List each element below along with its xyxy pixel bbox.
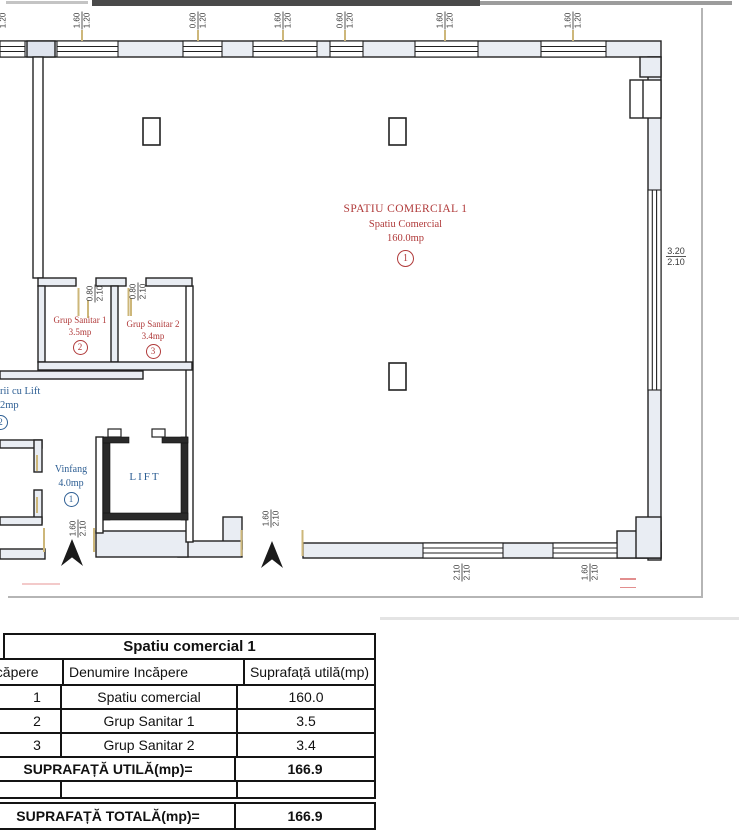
lift-label: LIFT (116, 470, 174, 485)
dimension-label: 1.601.20 (564, 6, 583, 36)
header-suprafata: Suprafață utilă(mp) (245, 660, 374, 684)
empty-row (0, 780, 376, 799)
red-stamp-mark (22, 583, 60, 590)
room-index-badge: 2 (73, 340, 88, 355)
table-header-row: ncăpere Denumire Incăpere Suprafață util… (0, 658, 376, 686)
facade-protrusion (630, 80, 661, 118)
floor-plan-drawing (0, 0, 739, 625)
room-area: 3.5mp (42, 326, 118, 338)
cell-area: 3.4 (238, 734, 374, 756)
dimension-label: 2.102.10 (453, 558, 472, 588)
dimension-label: 1.602.10 (581, 558, 600, 588)
room-area-partial: 2mp (0, 399, 64, 413)
door-dimension-label: 0.802.10 (86, 279, 105, 309)
cell-area: 160.0 (238, 686, 374, 708)
grup-sanitar-1-label: Grup Sanitar 1 3.5mp 2 (42, 314, 118, 355)
total-area-value: 166.9 (236, 804, 374, 828)
cell-name: Grup Sanitar 1 (60, 710, 238, 732)
room-name: LIFT (129, 471, 160, 483)
main-room-label: SPATIU COMERCIAL 1 Spatiu Comercial 160.… (328, 202, 483, 267)
table-title: Spatiu comercial 1 (3, 633, 376, 660)
room-area: 3.4mp (114, 330, 192, 342)
room-index-badge: 2 (0, 415, 8, 430)
room-subtitle: Spatiu Comercial (328, 218, 483, 232)
entrance-dimension-label: 1.602.10 (262, 504, 281, 534)
useful-area-value: 166.9 (236, 758, 374, 780)
room-index-badge: 1 (64, 492, 79, 507)
table-row: 2 Grup Sanitar 1 3.5 (0, 708, 376, 734)
cell-name: Grup Sanitar 2 (60, 734, 238, 756)
useful-area-label: SUPRAFAȚĂ UTILĂ(mp)= (0, 758, 236, 780)
floor-plan-document: SPATIU COMERCIAL 1 Spatiu Comercial 160.… (0, 0, 739, 838)
dimension-label: 0.601.20 (189, 6, 208, 36)
cell-name: Spatiu comercial (60, 686, 238, 708)
room-name: Vinfang (40, 463, 102, 477)
grup-sanitar-2-label: Grup Sanitar 2 3.4mp 3 (114, 318, 192, 359)
table-row: 3 Grup Sanitar 2 3.4 (0, 732, 376, 758)
room-area: 160.0mp (328, 232, 483, 246)
side-window-dimension-label: 3.20 2.10 (662, 246, 690, 267)
area-table: Spatiu comercial 1 ncăpere Denumire Incă… (0, 633, 376, 830)
total-area-label: SUPRAFAȚĂ TOTALĂ(mp)= (0, 804, 236, 828)
room-name: Grup Sanitar 2 (114, 318, 192, 330)
cell-area: 3.5 (238, 710, 374, 732)
cell-nr: 1 (0, 686, 60, 708)
dimension-label: 1.601.20 (73, 6, 92, 36)
red-stamp-mark (620, 578, 636, 588)
entrance-dimension-label: 1.602.10 (69, 514, 88, 544)
header-nr-incapere: ncăpere (0, 660, 62, 684)
total-area-row: SUPRAFAȚĂ TOTALĂ(mp)= 166.9 (0, 802, 376, 830)
dimension-label: 1.601.20 (436, 6, 455, 36)
room-index-badge: 3 (146, 344, 161, 359)
cell-nr: 3 (0, 734, 60, 756)
room-name: Grup Sanitar 1 (42, 314, 118, 326)
room-index-badge: 1 (397, 250, 414, 267)
header-denumire: Denumire Incăpere (62, 660, 245, 684)
door-dimension-label: 0.802.10 (129, 277, 148, 307)
dimension-label-clipped: 1.601.20 (0, 6, 8, 36)
useful-area-row: SUPRAFAȚĂ UTILĂ(mp)= 166.9 (0, 756, 376, 782)
staircase-label: rii cu Lift 2mp 2 (0, 385, 64, 431)
cell-nr: 2 (0, 710, 60, 732)
dimension-label: 1.601.20 (274, 6, 293, 36)
vinfang-label: Vinfang 4.0mp 1 (40, 463, 102, 507)
room-name: SPATIU COMERCIAL 1 (328, 202, 483, 218)
room-area: 4.0mp (40, 477, 102, 491)
room-name-partial: rii cu Lift (0, 385, 64, 399)
table-row: 1 Spatiu comercial 160.0 (0, 684, 376, 710)
dimension-label: 0.601.20 (336, 6, 355, 36)
